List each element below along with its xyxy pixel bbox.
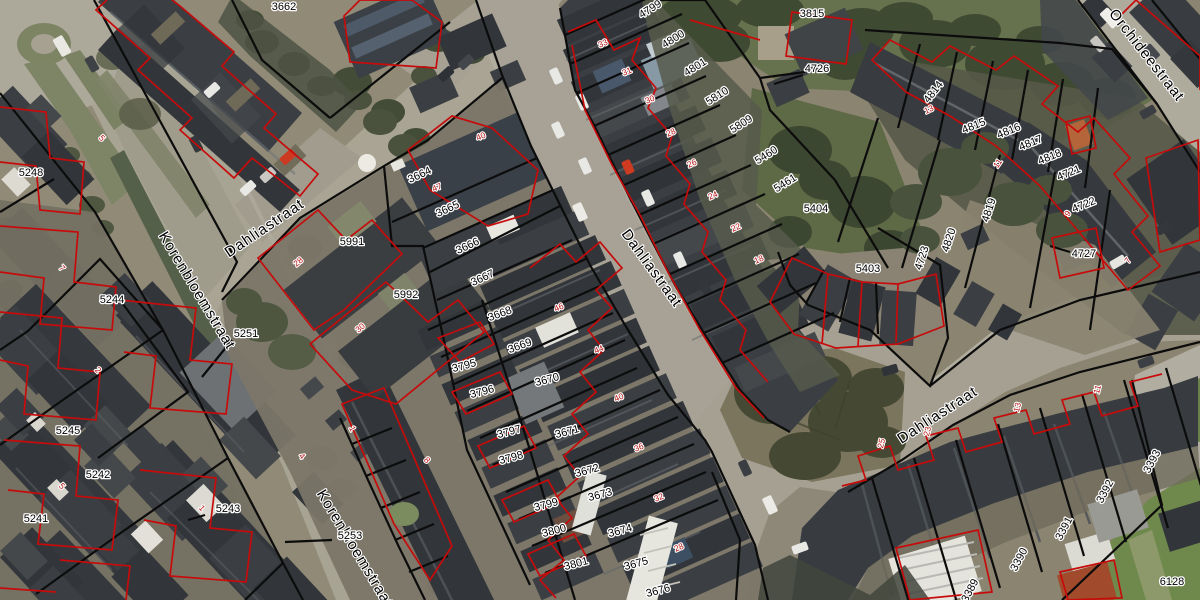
svg-text:4727: 4727: [1072, 248, 1096, 260]
svg-text:5251: 5251: [234, 328, 258, 340]
svg-text:5241: 5241: [24, 513, 48, 525]
svg-text:5253: 5253: [338, 530, 362, 542]
svg-text:5248: 5248: [19, 167, 43, 179]
svg-text:5244: 5244: [100, 294, 124, 306]
svg-text:4726: 4726: [805, 63, 829, 75]
svg-text:5245: 5245: [56, 425, 80, 437]
svg-text:6128: 6128: [1160, 576, 1184, 588]
svg-text:5992: 5992: [394, 289, 418, 301]
svg-text:5991: 5991: [340, 236, 364, 248]
svg-text:5403: 5403: [856, 263, 880, 275]
svg-text:3662: 3662: [272, 1, 296, 13]
svg-text:5404: 5404: [804, 203, 828, 215]
svg-text:3815: 3815: [800, 8, 824, 20]
svg-text:5243: 5243: [216, 503, 240, 515]
svg-text:5242: 5242: [86, 469, 110, 481]
